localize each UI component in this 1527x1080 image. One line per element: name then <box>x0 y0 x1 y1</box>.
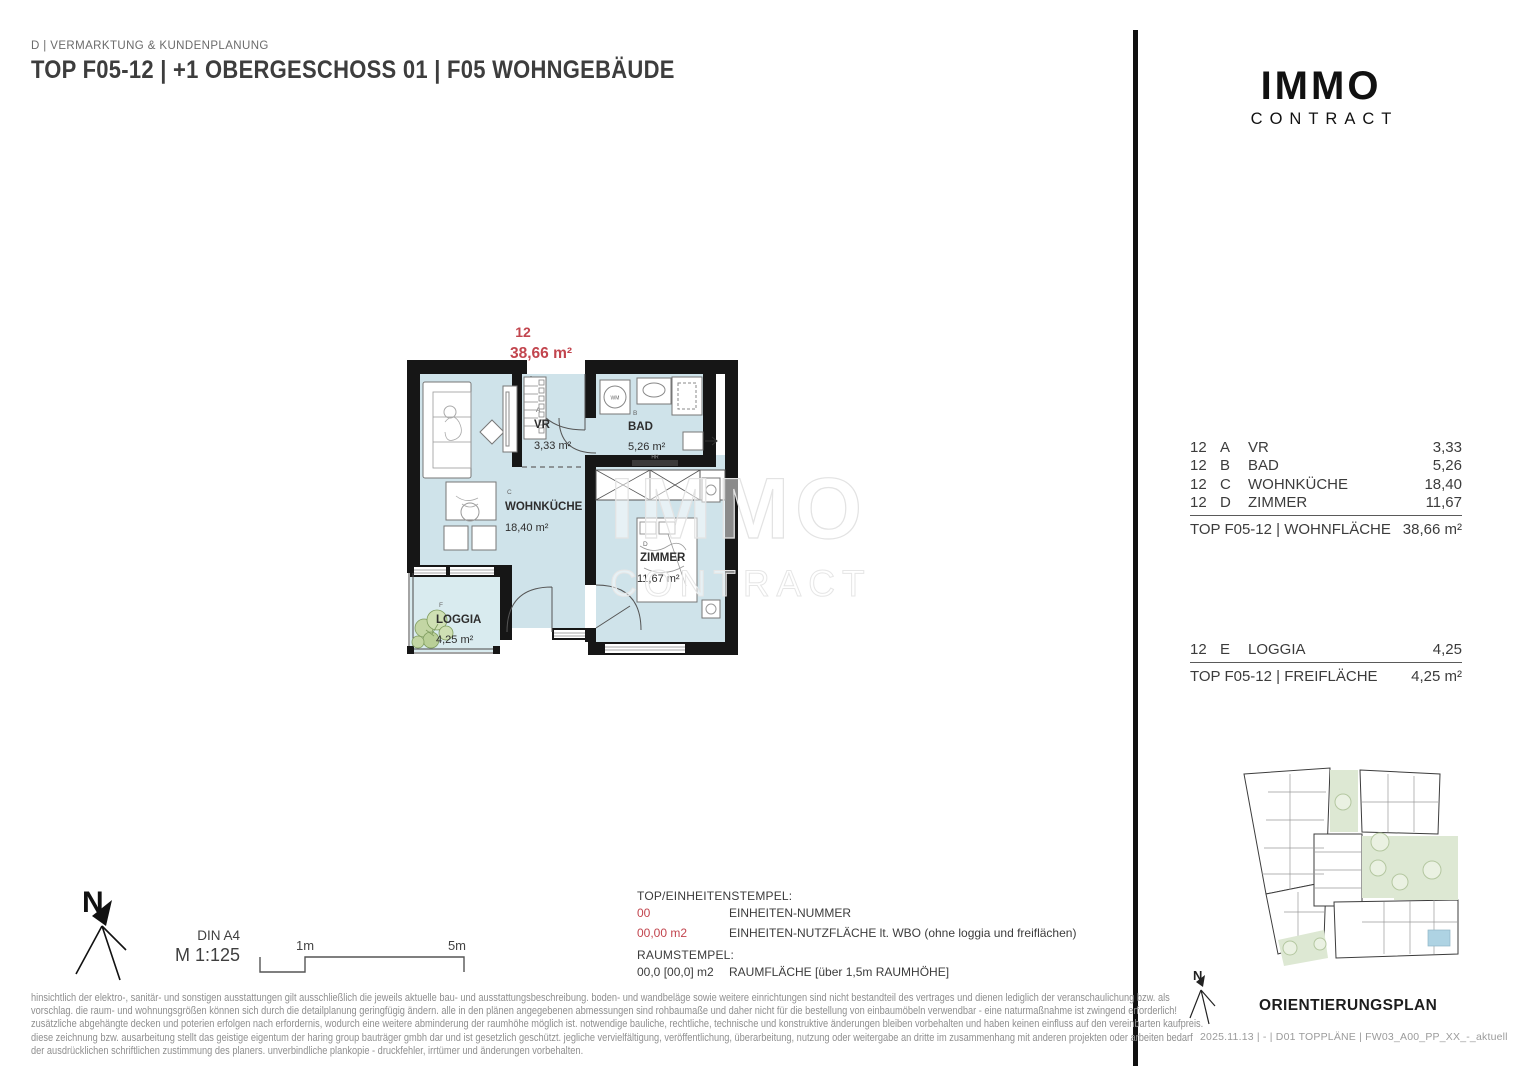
scale-bar: 1m 5m <box>258 938 476 978</box>
room-name-loggia: LOGGIA <box>436 614 481 626</box>
disclaimer-line: hinsichtlich der elektro-, sanitär- und … <box>31 992 951 1005</box>
department-label: D | VERMARKTUNG & KUNDENPLANUNG <box>31 40 762 52</box>
row-unit: 12 <box>1190 439 1220 456</box>
room-letter-wohnkueche: C <box>507 489 512 496</box>
stamp-title: TOP/EINHEITENSTEMPEL: <box>637 889 1076 903</box>
room-letter-bad: B <box>633 410 637 417</box>
orientation-site-plan <box>1228 762 1466 974</box>
room-area-bad: 5,26 m² <box>628 441 666 453</box>
living-area-table: 12 A VR 3,33 12 B BAD 5,26 12 C WOHNKÜCH… <box>1190 438 1462 538</box>
legend-sample: 00,00 m2 <box>637 923 729 943</box>
page-title: TOP F05-12 | +1 OBERGESCHOSS 01 | F05 WO… <box>31 56 675 85</box>
row-value: 3,33 <box>1404 439 1462 456</box>
scale-label: M 1:125 <box>155 945 240 966</box>
row-unit: 12 <box>1190 476 1220 493</box>
logo-line-contract: CONTRACT <box>1237 110 1405 129</box>
pool-area <box>1428 930 1450 946</box>
row-name: ZIMMER <box>1248 494 1404 511</box>
logo-line-immo: IMMO <box>1237 64 1405 109</box>
room-name-bad: BAD <box>628 421 653 433</box>
table-row: 12 A VR 3,33 <box>1190 438 1462 457</box>
washing-machine-label: WM <box>611 396 620 402</box>
vertical-divider <box>1133 30 1138 1066</box>
row-unit: 12 <box>1190 641 1220 658</box>
legend-desc: EINHEITEN-NUMMER <box>729 903 1076 923</box>
row-value: 5,26 <box>1404 457 1462 474</box>
row-letter: E <box>1220 641 1248 658</box>
row-unit: 12 <box>1190 457 1220 474</box>
disclaimer: hinsichtlich der elektro-, sanitär- und … <box>31 992 1126 1058</box>
row-value: 4,25 <box>1404 641 1462 658</box>
legend-sample: 00,0 [00,0] m2 <box>637 962 729 982</box>
room-fill-wohnkueche-south <box>500 565 585 628</box>
total-value: 4,25 m² <box>1411 668 1462 685</box>
table-row: 12 E LOGGIA 4,25 <box>1190 640 1462 659</box>
room-area-loggia: 4,25 m² <box>436 634 474 646</box>
room-letter-zimmer: D <box>643 541 648 548</box>
total-label: TOP F05-12 | WOHNFLÄCHE <box>1190 521 1391 538</box>
room-stamp-title: RAUMSTEMPEL: <box>637 948 1076 962</box>
row-name: WOHNKÜCHE <box>1248 476 1404 493</box>
orientation-title: ORIENTIERUNGSPLAN <box>1259 997 1437 1015</box>
scale-tick-5m: 5m <box>448 938 466 953</box>
legend-row: 00 EINHEITEN-NUMMER <box>637 903 1076 923</box>
room-letter-vr: A <box>536 407 541 414</box>
disclaimer-line: der ausdrücklichen schriftlichen zustimm… <box>31 1045 951 1058</box>
room-area-vr: 3,33 m² <box>534 440 572 452</box>
room-name-wohnkueche: WOHNKÜCHE <box>505 500 583 513</box>
row-letter: B <box>1220 457 1248 474</box>
table-row: 12 B BAD 5,26 <box>1190 457 1462 476</box>
header: D | VERMARKTUNG & KUNDENPLANUNG TOP F05-… <box>31 40 762 85</box>
room-area-wohnkueche: 18,40 m² <box>505 522 549 534</box>
heating-rail-label: HR <box>651 455 659 461</box>
row-value: 18,40 <box>1404 476 1462 493</box>
room-name-vr: VR <box>534 419 551 431</box>
floorplan-drawing: 12 38,66 m² <box>400 320 748 668</box>
row-name: VR <box>1248 439 1404 456</box>
free-area-table: 12 E LOGGIA 4,25 TOP F05-12 | FREIFLÄCHE… <box>1190 640 1462 685</box>
table-row: 12 C WOHNKÜCHE 18,40 <box>1190 475 1462 494</box>
legend-row: 00,00 m2 EINHEITEN-NUTZFLÄCHE lt. WBO (o… <box>637 923 1076 943</box>
living-area-total: TOP F05-12 | WOHNFLÄCHE 38,66 m² <box>1190 515 1462 538</box>
disclaimer-line: vorschlag. die raum- und wohnungsgrößen … <box>31 1005 951 1018</box>
row-value: 11,67 <box>1404 494 1462 511</box>
row-letter: A <box>1220 439 1248 456</box>
row-name: BAD <box>1248 457 1404 474</box>
row-name: LOGGIA <box>1248 641 1404 658</box>
scale-tick-1m: 1m <box>296 938 314 953</box>
unit-area: 38,66 m² <box>510 345 572 362</box>
drawing-footer: 2025.11.13 | - | D01 TOPPLÄNE | FW03_A00… <box>1200 1031 1508 1043</box>
total-value: 38,66 m² <box>1403 521 1462 538</box>
row-unit: 12 <box>1190 494 1220 511</box>
room-area-zimmer: 11,67 m² <box>637 573 680 585</box>
room-name-zimmer: ZIMMER <box>640 552 686 564</box>
legend-desc: RAUMFLÄCHE [über 1,5m RAUMHÖHE] <box>729 962 1076 982</box>
paper-scale-info: DIN A4 M 1:125 <box>155 928 240 966</box>
row-letter: C <box>1220 476 1248 493</box>
legend-row: 00,0 [00,0] m2 RAUMFLÄCHE [über 1,5m RAU… <box>637 962 1076 982</box>
unit-number: 12 <box>515 324 531 340</box>
disclaimer-line: zusätzliche abgehängte decken und poteri… <box>31 1018 951 1031</box>
legend-sample: 00 <box>637 903 729 923</box>
table-row: 12 D ZIMMER 11,67 <box>1190 494 1462 513</box>
room-letter-loggia: F <box>439 602 443 609</box>
row-letter: D <box>1220 494 1248 511</box>
north-arrow: N <box>68 880 158 982</box>
plan-sheet: D | VERMARKTUNG & KUNDENPLANUNG TOP F05-… <box>0 0 1527 1080</box>
legend-desc: EINHEITEN-NUTZFLÄCHE lt. WBO (ohne loggi… <box>729 923 1076 943</box>
paper-format: DIN A4 <box>155 928 240 943</box>
stamp-legend: TOP/EINHEITENSTEMPEL: 00 EINHEITEN-NUMME… <box>637 889 1076 982</box>
immo-contract-logo: IMMO CONTRACT <box>1237 64 1405 129</box>
free-area-total: TOP F05-12 | FREIFLÄCHE 4,25 m² <box>1190 662 1462 685</box>
disclaimer-line: diese zeichnung bzw. ausarbeitung stellt… <box>31 1032 951 1045</box>
total-label: TOP F05-12 | FREIFLÄCHE <box>1190 668 1378 685</box>
